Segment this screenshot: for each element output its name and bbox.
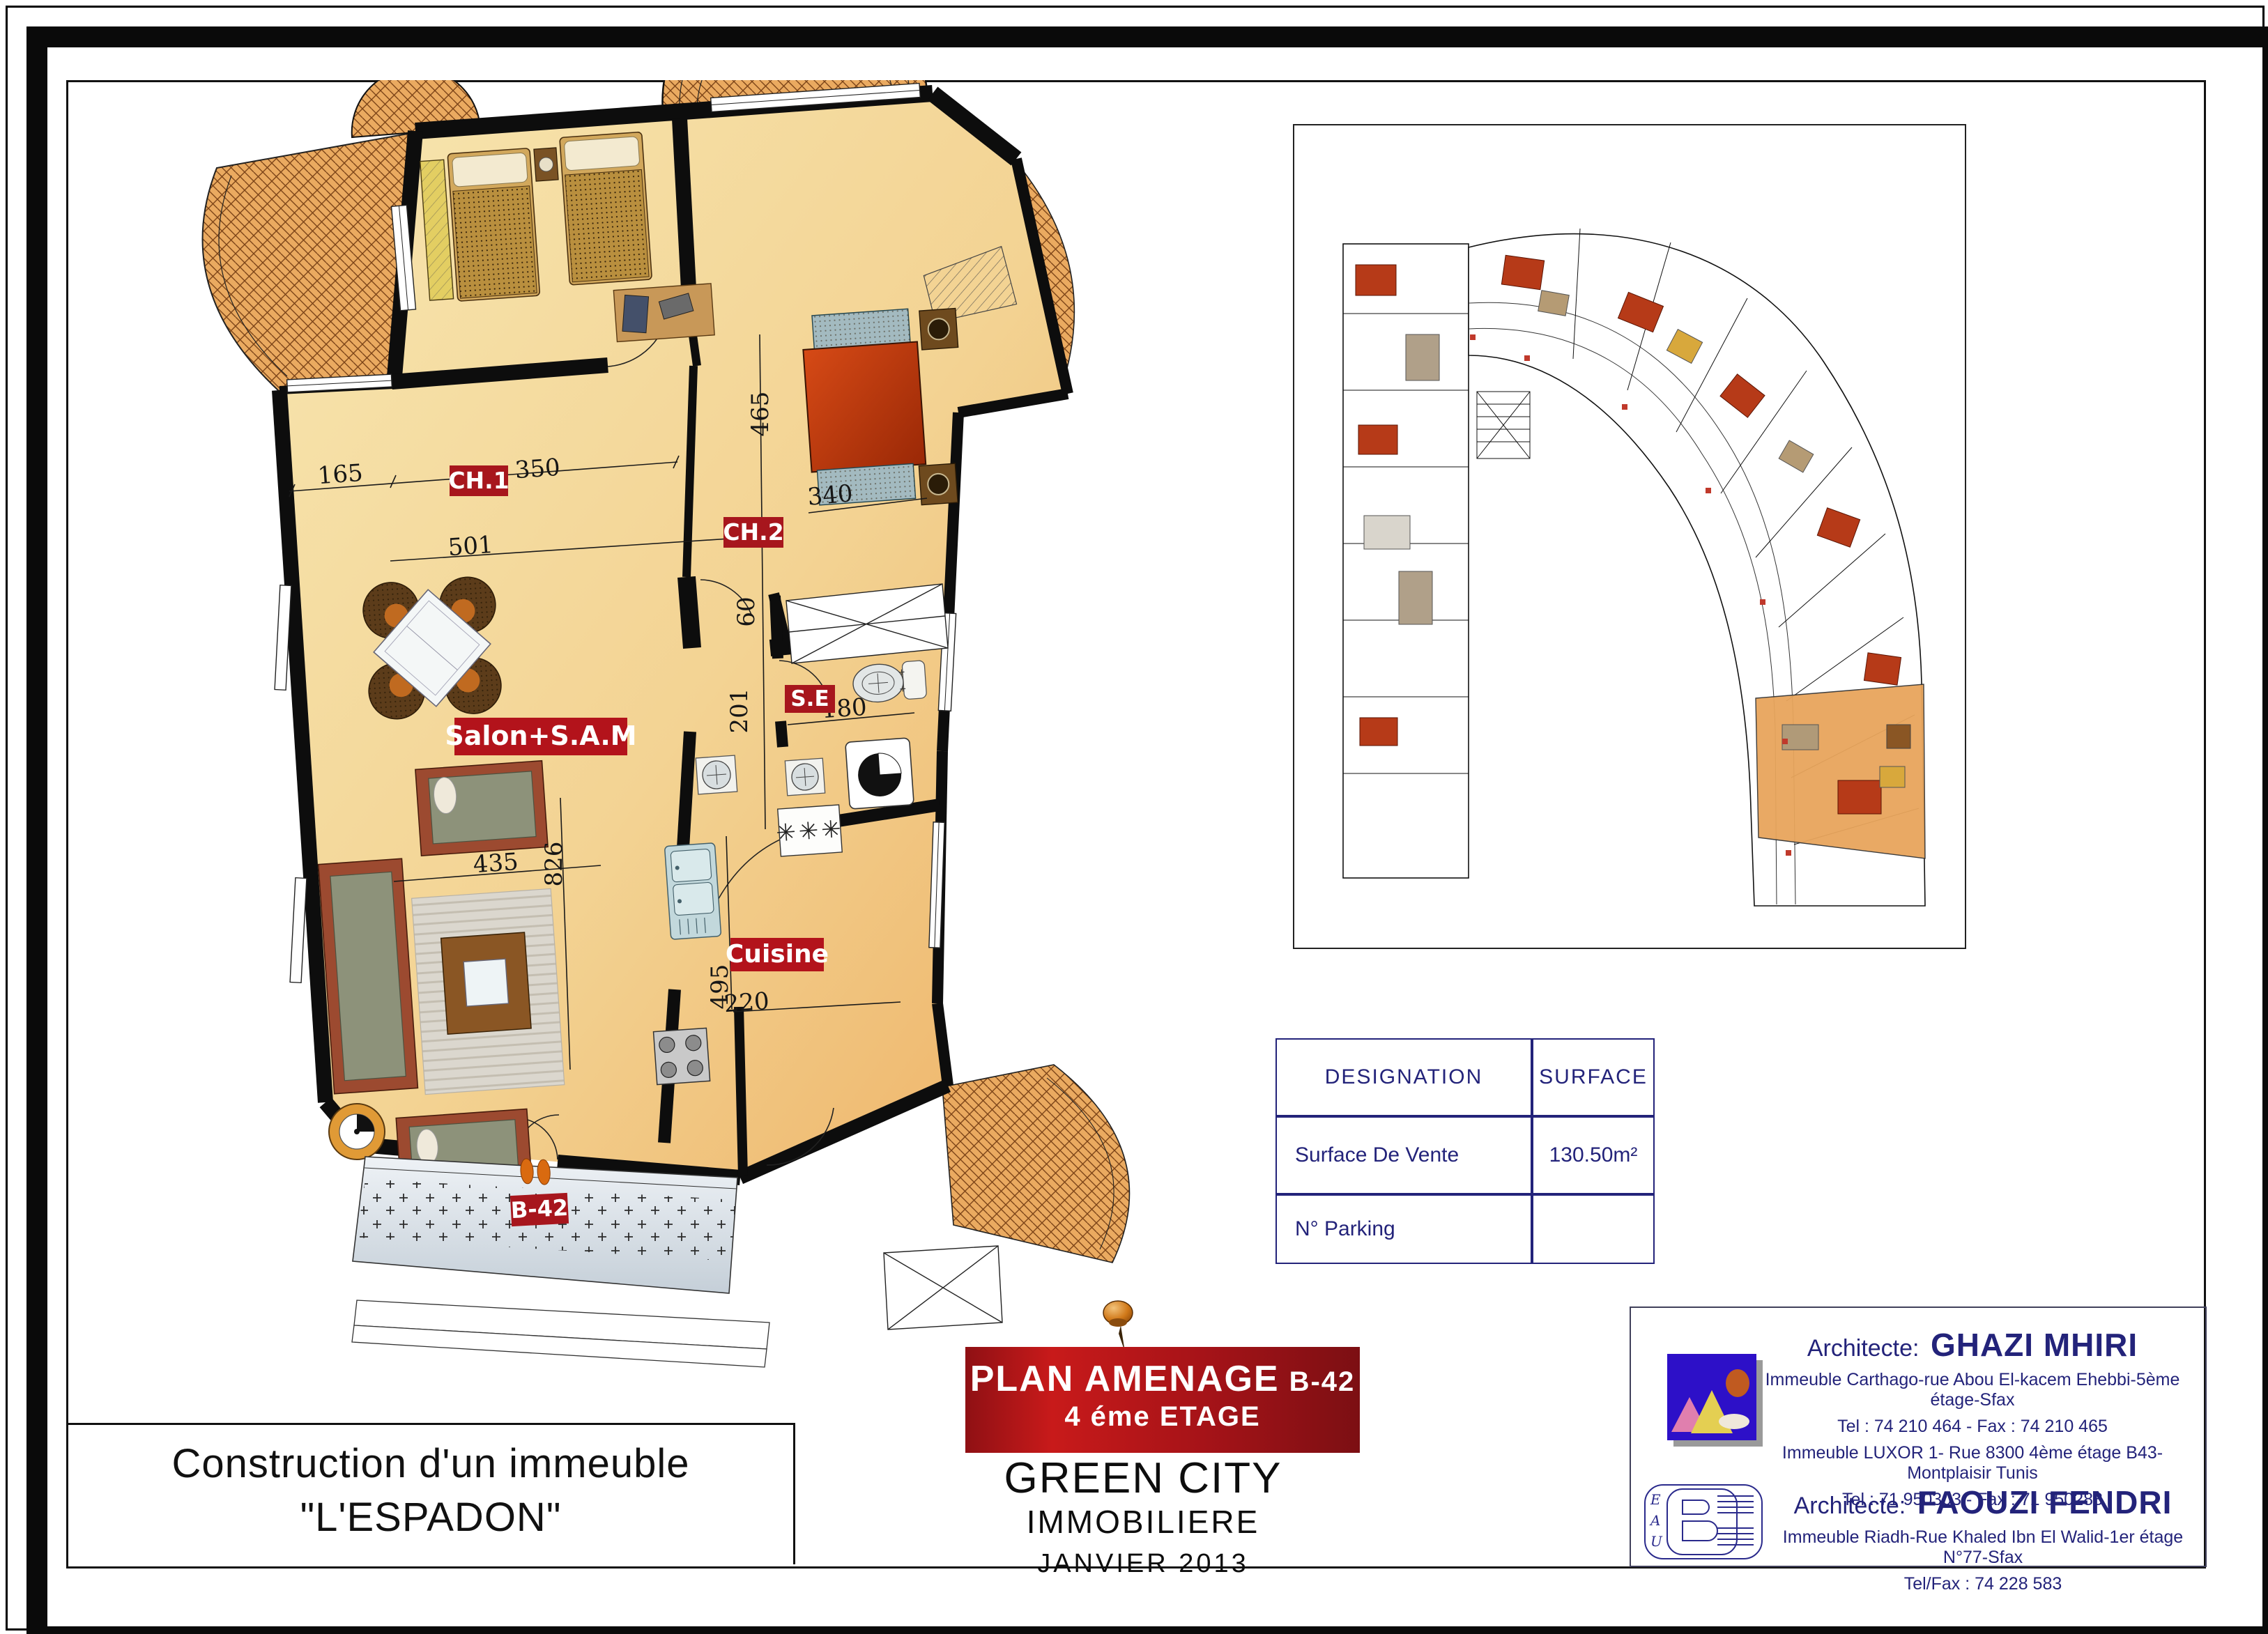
dim-340: 340	[806, 479, 854, 511]
architect1-address1: Immeuble Carthago-rue Abou El-kacem Eheb…	[1746, 1370, 2199, 1410]
svg-text:U: U	[1650, 1533, 1663, 1550]
svg-text:CH.1: CH.1	[448, 467, 509, 494]
architects-panel: Architecte: GHAZI MHIRI Immeuble Carthag…	[1630, 1307, 2207, 1567]
company-name: GREEN CITY	[913, 1454, 1373, 1503]
architect1-name: GHAZI MHIRI	[1931, 1327, 2138, 1363]
dim-350: 350	[514, 454, 561, 484]
ch1-desk	[613, 284, 714, 342]
apartment-floor-plan: ++ ✳✳✳	[66, 80, 1279, 1428]
label-ch2: CH.2	[723, 517, 783, 548]
architect2-logo-eau: EAU	[1642, 1482, 1765, 1562]
logo-cloud-shape	[1719, 1414, 1749, 1429]
cuisine-fridge: ✳✳✳	[774, 805, 845, 857]
svg-text:A: A	[1649, 1512, 1660, 1529]
ch1-bed-1	[447, 148, 540, 302]
corridor-washbasin	[696, 755, 737, 794]
dim-435: 435	[472, 848, 519, 879]
svg-text:S.E: S.E	[790, 686, 829, 711]
company-subtitle: IMMOBILIERE	[913, 1503, 1373, 1541]
ch1-bed-2	[560, 132, 652, 285]
dim-501: 501	[447, 531, 494, 562]
entry-terrace	[352, 1157, 769, 1367]
architect1-block: Architecte: GHAZI MHIRI Immeuble Carthag…	[1746, 1326, 2199, 1510]
drawing-date: JANVIER 2013	[913, 1549, 1373, 1579]
banner-floor: 4 éme ETAGE	[965, 1401, 1360, 1433]
architect2-label: Architecte:	[1794, 1493, 1906, 1519]
salon-dining-set	[361, 576, 503, 721]
label-unit-b42: B-42	[510, 1193, 569, 1226]
architect1-label: Architecte:	[1807, 1335, 1920, 1362]
svg-text:+: +	[899, 684, 907, 696]
table-header-surface: SURFACE	[1532, 1038, 1655, 1116]
label-se: S.E	[785, 685, 835, 713]
ch1-nightstand	[534, 148, 558, 181]
dim-220: 220	[723, 987, 770, 1018]
svg-text:Salon+S.A.M: Salon+S.A.M	[445, 720, 636, 751]
se-washing-machine	[845, 738, 914, 809]
project-title-block: Construction d'un immeuble "L'ESPADON"	[68, 1423, 795, 1564]
svg-text:+: +	[898, 667, 905, 679]
fridge-freezer-mark: ✳✳✳	[775, 816, 845, 847]
architect2-name: FAOUZI FENDRI	[1917, 1484, 2173, 1520]
architect2-address1: Immeuble Riadh-Rue Khaled Ibn El Walid-1…	[1767, 1527, 2199, 1568]
dim-60: 60	[733, 596, 760, 626]
dim-201: 201	[726, 688, 753, 734]
project-title-line1: Construction d'un immeuble	[68, 1440, 793, 1487]
drawing-sheet: ++ ✳✳✳	[0, 0, 2268, 1634]
table-header-designation: DESIGNATION	[1275, 1038, 1532, 1116]
salon-sofa-left	[319, 858, 418, 1094]
svg-text:Cuisine: Cuisine	[726, 940, 829, 969]
architect1-tel1: Tel : 74 210 464 - Fax : 74 210 465	[1746, 1417, 2199, 1437]
dim-165: 165	[316, 459, 364, 490]
terrace-fan-top-left	[203, 132, 415, 392]
overview-key-plan	[1293, 124, 1966, 949]
cuisine-stove	[654, 1028, 710, 1084]
label-salon: Salon+S.A.M	[445, 718, 636, 755]
overview-building	[1294, 125, 1965, 948]
balcony-bottom-right	[942, 1065, 1129, 1263]
se-washbasin	[785, 758, 825, 796]
entry-steps	[352, 1300, 769, 1367]
banner-unit: B-42	[1289, 1366, 1356, 1397]
architect2-block: Architecte: FAOUZI FENDRI Immeuble Riadh…	[1767, 1483, 2199, 1594]
architect2-tel1: Tel/Fax : 74 228 583	[1767, 1574, 2199, 1594]
cuisine-sink	[664, 843, 721, 940]
entry-x-box	[884, 1246, 1002, 1329]
salon-sofa-top	[415, 761, 548, 856]
table-row-designation: Surface De Vente	[1275, 1116, 1532, 1194]
dim-465: 465	[746, 392, 774, 437]
table-row-surface-value	[1532, 1194, 1655, 1264]
plan-banner: PLAN AMENAGEB-42 4 éme ETAGE	[965, 1347, 1360, 1453]
label-cuisine: Cuisine	[726, 938, 829, 971]
label-ch1: CH.1	[448, 465, 509, 496]
architect1-address2: Immeuble LUXOR 1- Rue 8300 4ème étage B4…	[1746, 1443, 2199, 1483]
svg-text:B-42: B-42	[510, 1194, 569, 1224]
surface-table: DESIGNATION SURFACE Surface De Vente 130…	[1275, 1038, 1655, 1264]
banner-title: PLAN AMENAGE	[970, 1359, 1280, 1399]
ch2-bed	[803, 341, 926, 472]
salon-round-table	[329, 1104, 385, 1159]
table-row-designation: N° Parking	[1275, 1194, 1532, 1264]
dim-826: 826	[540, 842, 568, 887]
svg-text:CH.2: CH.2	[723, 518, 783, 546]
ch2-nightstand-1	[919, 309, 958, 350]
company-block: GREEN CITY IMMOBILIERE JANVIER 2013	[913, 1454, 1373, 1579]
project-title-line2: "L'ESPADON"	[68, 1494, 793, 1541]
table-row-surface-value: 130.50m²	[1532, 1116, 1655, 1194]
salon-rug	[412, 888, 565, 1094]
architect1-logo	[1667, 1354, 1756, 1440]
svg-text:E: E	[1650, 1491, 1661, 1508]
